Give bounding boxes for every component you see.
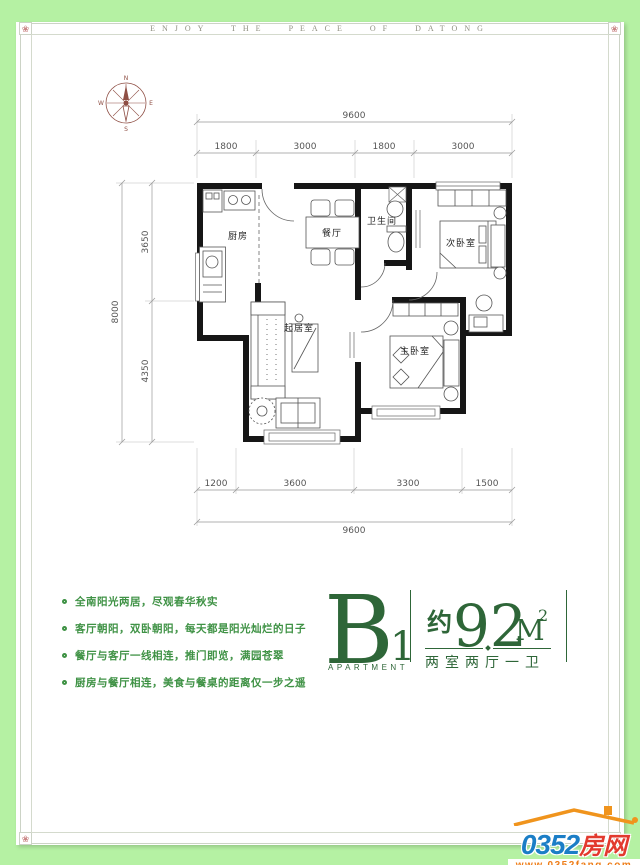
unit-block-caption: APARTMENT xyxy=(328,663,408,672)
rule-line xyxy=(425,648,483,649)
living-furniture xyxy=(249,302,320,428)
dimension-extension-lines xyxy=(116,114,512,526)
toilet-icon xyxy=(388,232,404,252)
area-prefix: 约 xyxy=(427,603,452,639)
divider-line xyxy=(410,590,411,662)
compass-east-label: E xyxy=(149,100,153,107)
monitor-icon xyxy=(474,317,487,327)
dim-top-seg: 1800 xyxy=(373,142,396,152)
dim-bottom-seg: 1500 xyxy=(476,479,499,489)
room-label-bedroom2: 次卧室 xyxy=(446,237,476,249)
dim-top-seg: 3000 xyxy=(452,142,475,152)
feature-item: 厨房与餐厅相连，美食与餐桌的距离仅一步之遥 xyxy=(62,669,342,696)
rule-diamond-icon xyxy=(485,645,491,651)
stool-icon xyxy=(494,207,506,219)
unit-layout: 两室两厅一卫 xyxy=(425,652,545,672)
dim-left-seg: 4350 xyxy=(141,359,151,382)
dim-bottom-seg: 1200 xyxy=(205,479,228,489)
unit-area: 约 92 M 2 两室两厅一卫 xyxy=(425,570,555,680)
logo-name: 房网 xyxy=(579,833,627,860)
dim-top-seg: 1800 xyxy=(215,142,238,152)
room-label-master: 主卧室 xyxy=(400,345,430,357)
decor-icon xyxy=(295,314,303,322)
stool-icon xyxy=(494,267,506,279)
chair-icon xyxy=(335,249,354,265)
feature-item: 餐厅与客厅一线相连，推门即览，满园苍翠 xyxy=(62,642,342,669)
wardrobe-icon xyxy=(393,303,458,316)
rule-line xyxy=(493,648,551,649)
flyer-page: ❀ ❀ ❀ ❀ ENJOY THE PEACE OF DATONG N E S … xyxy=(0,0,640,865)
bullet-ring-icon xyxy=(62,599,67,604)
feature-text: 餐厅与客厅一线相连，推门即览，满园苍翠 xyxy=(75,648,284,663)
bullet-ring-icon xyxy=(62,626,67,631)
room-label-kitchen: 厨房 xyxy=(228,230,248,242)
logo-text: 0352房网 xyxy=(508,826,640,861)
feature-text: 客厅朝阳，双卧朝阳，每天都是阳光灿烂的日子 xyxy=(75,621,306,636)
dim-bottom-seg: 3600 xyxy=(284,479,307,489)
roof-icon xyxy=(508,806,640,826)
bedroom2-furniture xyxy=(438,190,506,279)
sofa-icon xyxy=(251,302,285,399)
divider-line xyxy=(566,590,567,662)
compass-north-label: N xyxy=(124,75,129,82)
nightstand-icon xyxy=(444,387,458,401)
unit-info: B 1 APARTMENT 约 92 M 2 两室两厅一卫 xyxy=(320,570,588,700)
logo-number: 0352 xyxy=(521,829,579,860)
dresser-icon xyxy=(444,340,459,386)
room-label-dining: 餐厅 xyxy=(322,227,342,239)
compass-icon: N E S W xyxy=(98,75,153,133)
area-exponent: 2 xyxy=(538,608,548,624)
dim-top-seg: 3000 xyxy=(294,142,317,152)
feature-list: 全南阳光两居，尽观春华秋实 客厅朝阳，双卧朝阳，每天都是阳光灿烂的日子 餐厅与客… xyxy=(62,588,342,696)
compass-west-label: W xyxy=(98,100,104,107)
feature-text: 全南阳光两居，尽观春华秋实 xyxy=(75,594,218,609)
chair-icon xyxy=(311,200,330,216)
compass-south-label: S xyxy=(124,126,128,133)
floorplan-drawing: N E S W xyxy=(70,58,540,550)
dim-left-total: 8000 xyxy=(111,300,121,323)
bathroom-door-arc xyxy=(361,263,385,287)
feature-item: 全南阳光两居，尽观春华秋实 xyxy=(62,588,342,615)
desk-chair-icon xyxy=(476,295,492,311)
bullet-ring-icon xyxy=(62,653,67,658)
room-label-living: 起居室 xyxy=(284,322,314,334)
feature-item: 客厅朝阳，双卧朝阳，每天都是阳光灿烂的日子 xyxy=(62,615,342,642)
bullet-ring-icon xyxy=(62,680,67,685)
chair-icon xyxy=(311,249,330,265)
sink-icon xyxy=(206,256,218,268)
room-label-bathroom: 卫生间 xyxy=(367,215,397,227)
tagline: ENJOY THE PEACE OF DATONG xyxy=(0,24,640,33)
dimension-lines xyxy=(119,119,515,525)
nightstand-icon xyxy=(444,321,458,335)
dim-bottom-total: 9600 xyxy=(343,526,366,536)
basin-icon xyxy=(387,201,403,217)
entry-door-arc xyxy=(262,189,294,221)
nightstand-icon xyxy=(491,225,505,267)
corner-flower-icon: ❀ xyxy=(19,832,32,845)
site-logo: 0352房网 www.0352fang.com xyxy=(508,806,640,865)
divider-rule xyxy=(425,646,551,650)
dim-bottom-seg: 3300 xyxy=(397,479,420,489)
dim-left-seg: 3650 xyxy=(141,230,151,253)
unit-block-number: 1 xyxy=(390,627,415,667)
hall-door-arc xyxy=(361,300,393,332)
chair-icon xyxy=(335,200,354,216)
kitchen-furniture xyxy=(200,190,256,302)
dim-top-total: 9600 xyxy=(343,111,366,121)
bedroom2-door-arc xyxy=(409,272,437,300)
feature-text: 厨房与餐厅相连，美食与餐桌的距离仅一步之遥 xyxy=(75,675,306,690)
